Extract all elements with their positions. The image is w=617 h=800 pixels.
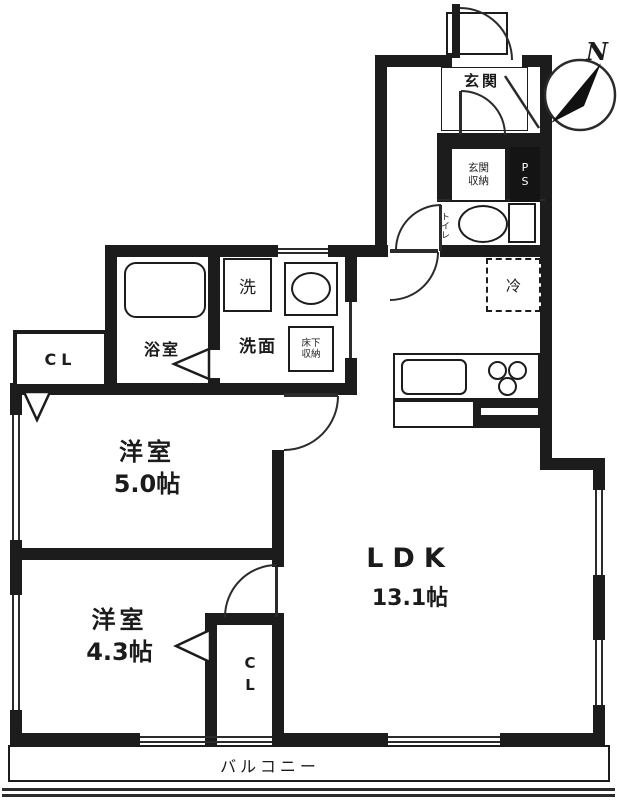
window: [140, 741, 272, 743]
window: [601, 490, 603, 575]
wall: [10, 733, 140, 745]
wall: [540, 55, 552, 470]
wall: [10, 385, 22, 415]
window: [601, 640, 603, 705]
balcony-railing: [2, 788, 615, 791]
window: [388, 741, 500, 743]
stove-burner-icon: [498, 377, 517, 396]
western-room-1-name: 洋室: [62, 432, 232, 467]
window: [595, 640, 597, 705]
door-swing-arc: [225, 565, 277, 617]
wall: [437, 133, 540, 147]
balcony-railing: [2, 794, 615, 797]
wall: [10, 540, 22, 595]
balcony-label: バルコニー: [160, 753, 380, 777]
window: [140, 736, 272, 738]
kitchen-sink-icon: [401, 359, 467, 395]
wall: [593, 458, 605, 490]
window: [595, 490, 597, 575]
compass-needle-icon: [551, 63, 601, 123]
window: [18, 595, 20, 710]
floor-plan: 玄関 収納 PS トイレ 冷 洗 床下 収納 CL CL: [0, 0, 617, 800]
pipe-space: PS: [510, 147, 540, 202]
closet-2-label: CL: [233, 640, 259, 712]
window: [278, 245, 328, 257]
laundry-label: 洗: [239, 273, 256, 298]
wall: [205, 613, 284, 625]
wall: [593, 575, 605, 640]
western-room-1-size: 5.0帖: [62, 464, 232, 499]
closet-1: CL: [13, 330, 108, 388]
door-swing-arc: [284, 396, 338, 450]
refrigerator-space: 冷: [486, 258, 541, 312]
wall: [345, 245, 357, 302]
door-leaf: [284, 393, 338, 397]
window: [12, 595, 14, 710]
wall: [500, 733, 605, 745]
ldk-size: 13.1帖: [330, 580, 490, 612]
sliding-door: [349, 302, 352, 358]
entrance-label: 玄関: [432, 70, 532, 91]
wall: [272, 450, 284, 560]
window: [18, 415, 20, 540]
toilet-bowl-icon: [458, 205, 508, 243]
western-room-2-name: 洋室: [32, 600, 207, 635]
kitchen-cabinet: [393, 400, 475, 428]
pipe-space-label: PS: [519, 161, 532, 189]
compass-circle: [545, 60, 615, 130]
wall: [593, 705, 605, 745]
front-door-leaf: [452, 4, 460, 58]
window: [388, 736, 500, 738]
wall: [10, 548, 284, 560]
wall: [437, 133, 450, 202]
underfloor-storage: 床下 収納: [288, 326, 334, 372]
entrance-storage-label-line2: 収納: [468, 175, 489, 188]
washbasin-bowl-icon: [291, 272, 331, 305]
wall: [208, 245, 220, 350]
kitchen-counter-slot: [481, 408, 538, 415]
closet-1-label: CL: [45, 350, 77, 369]
wall: [328, 245, 388, 257]
washing-machine-pan: 洗: [223, 258, 272, 312]
door-leaf: [439, 205, 442, 251]
window: [278, 248, 328, 250]
wall: [272, 560, 284, 567]
ldk-name: LDK: [330, 543, 490, 574]
underfloor-storage-label-line1: 床下: [301, 338, 320, 349]
wall: [375, 55, 387, 257]
refrigerator-label: 冷: [506, 275, 521, 296]
western-room-2-size: 4.3帖: [32, 632, 207, 667]
door-leaf: [275, 567, 278, 617]
compass-north-label: N: [585, 37, 609, 66]
window: [12, 415, 14, 540]
toilet-tank-icon: [508, 203, 536, 243]
bathtub-icon: [124, 262, 206, 318]
door-leaf: [459, 91, 462, 135]
wall: [105, 245, 278, 257]
entrance-storage-label-line1: 玄関: [468, 162, 489, 175]
door-leaf: [390, 249, 438, 253]
door-swing-arc: [396, 205, 441, 250]
door-swing-arc: [390, 252, 438, 300]
wall: [272, 617, 284, 745]
folding-door-icon: [24, 392, 50, 420]
bathroom-label: 浴室: [117, 336, 207, 360]
wall: [440, 245, 552, 257]
washroom-label: 洗面: [222, 332, 294, 357]
entrance-storage-cabinet: 玄関 収納: [450, 147, 507, 202]
window: [278, 252, 328, 254]
wall: [272, 733, 388, 745]
underfloor-storage-label-line2: 収納: [301, 349, 320, 360]
